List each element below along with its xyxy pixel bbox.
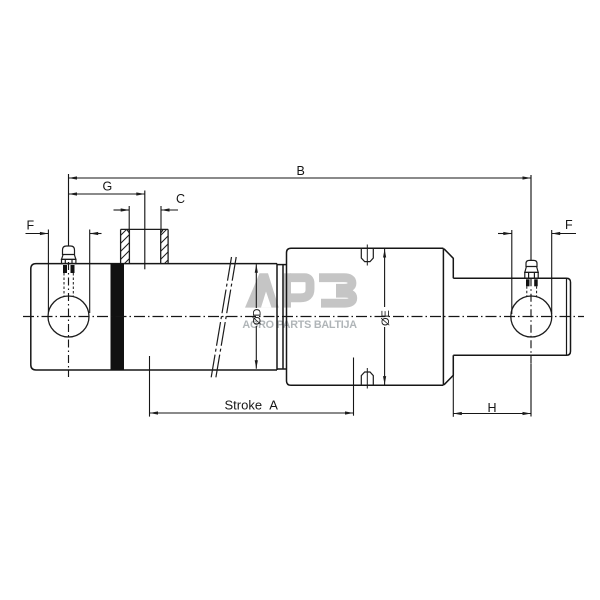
- svg-text:G: G: [103, 180, 113, 194]
- svg-text:ØE: ØE: [380, 310, 392, 326]
- svg-text:B: B: [297, 164, 305, 178]
- svg-text:F: F: [565, 218, 573, 232]
- svg-text:H: H: [488, 401, 497, 415]
- svg-text:Stroke A: Stroke A: [225, 398, 279, 413]
- svg-text:C: C: [176, 192, 185, 206]
- svg-text:F: F: [27, 219, 35, 233]
- svg-text:ØD: ØD: [252, 308, 264, 325]
